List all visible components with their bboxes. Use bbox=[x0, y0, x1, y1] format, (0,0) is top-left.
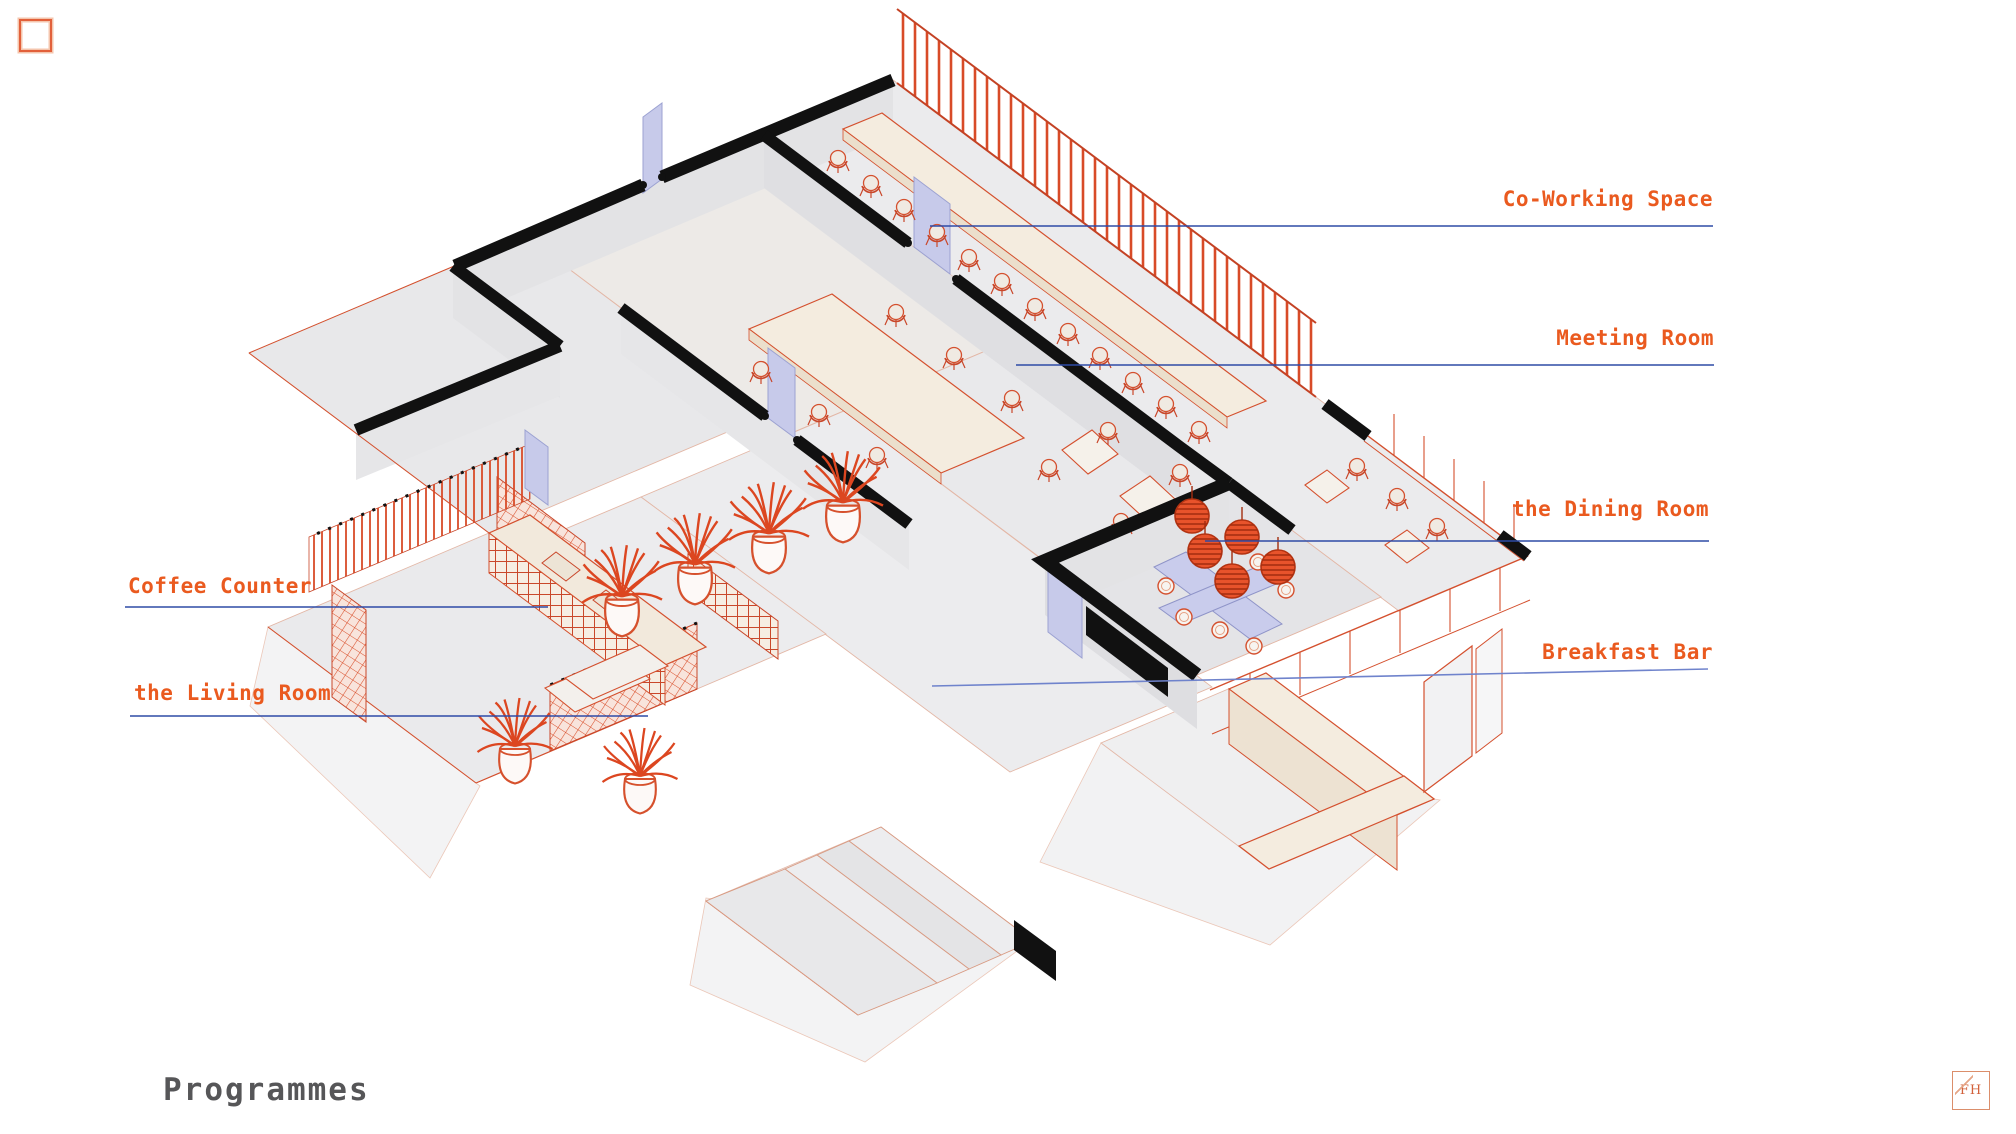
label-meeting-room: Meeting Room bbox=[1556, 327, 1714, 349]
axonometric-floor-plan bbox=[0, 0, 2016, 1134]
label-coffee-counter: Coffee Counter bbox=[128, 575, 312, 597]
label-dining-room: the Dining Room bbox=[1512, 498, 1709, 520]
label-breakfast-bar: Breakfast Bar bbox=[1542, 641, 1713, 663]
brand-logo: FH bbox=[1952, 1071, 1990, 1110]
label-coworking-space: Co-Working Space bbox=[1503, 188, 1713, 210]
slide: Co-Working Space Meeting Room the Dining… bbox=[0, 0, 2016, 1134]
logo-slash-icon bbox=[1955, 1074, 1973, 1096]
label-living-room: the Living Room bbox=[134, 682, 331, 704]
page-title: Programmes bbox=[163, 1072, 370, 1108]
corner-square-decoration bbox=[19, 19, 52, 52]
